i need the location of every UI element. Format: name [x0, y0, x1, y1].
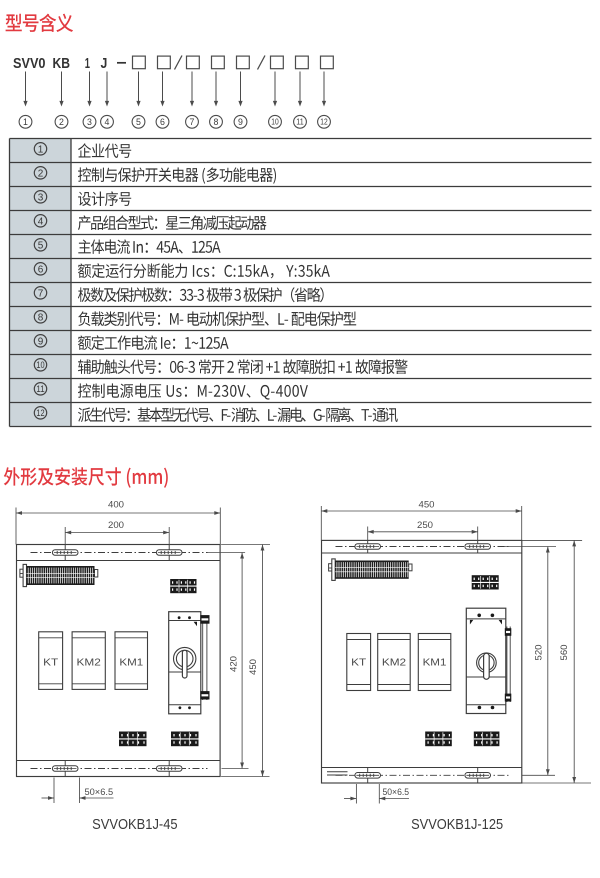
- svg-text:KM1: KM1: [423, 657, 447, 668]
- svg-text:12: 12: [320, 118, 328, 127]
- svg-text:3: 3: [87, 117, 92, 127]
- svg-text:SVV0: SVV0: [13, 56, 46, 72]
- svg-text:KM2: KM2: [77, 657, 102, 668]
- svg-text:450: 450: [247, 659, 258, 675]
- svg-text:7: 7: [190, 117, 195, 127]
- svg-text:4: 4: [38, 216, 44, 227]
- svg-text:2: 2: [59, 117, 64, 127]
- svg-text:250: 250: [417, 519, 433, 530]
- svg-text:J: J: [101, 56, 108, 72]
- svg-text:KT: KT: [43, 657, 59, 668]
- svg-text:5: 5: [136, 117, 141, 127]
- svg-text:2: 2: [38, 168, 44, 179]
- svg-text:SVVOKB1J-45: SVVOKB1J-45: [92, 817, 178, 833]
- svg-text:7: 7: [38, 288, 44, 299]
- svg-text:KM2: KM2: [382, 657, 407, 668]
- svg-text:1: 1: [38, 144, 44, 155]
- svg-text:50×6.5: 50×6.5: [383, 786, 410, 797]
- svg-text:200: 200: [108, 519, 124, 530]
- svg-text:420: 420: [228, 656, 239, 672]
- svg-text:9: 9: [38, 336, 44, 347]
- svg-text:11: 11: [296, 118, 304, 127]
- svg-text:SVVOKB1J-125: SVVOKB1J-125: [411, 817, 503, 833]
- svg-text:1: 1: [85, 56, 90, 72]
- svg-text:KB: KB: [53, 56, 71, 72]
- svg-text:3: 3: [38, 192, 44, 203]
- svg-text:560: 560: [558, 645, 569, 661]
- svg-text:5: 5: [38, 240, 44, 251]
- svg-text:50×6.5: 50×6.5: [85, 786, 114, 797]
- svg-text:1: 1: [23, 117, 28, 127]
- svg-text:KT: KT: [351, 657, 367, 668]
- svg-text:520: 520: [532, 645, 543, 661]
- svg-text:10: 10: [36, 360, 44, 370]
- svg-text:8: 8: [214, 117, 219, 127]
- svg-text:12: 12: [36, 408, 44, 418]
- svg-text:6: 6: [160, 117, 165, 127]
- svg-text:400: 400: [108, 499, 124, 510]
- svg-text:KM1: KM1: [119, 657, 143, 668]
- svg-text:10: 10: [271, 118, 279, 127]
- svg-text:9: 9: [238, 117, 243, 127]
- svg-text:8: 8: [38, 312, 44, 323]
- svg-text:11: 11: [36, 384, 44, 394]
- svg-text:4: 4: [105, 117, 110, 127]
- svg-text:450: 450: [419, 499, 435, 510]
- svg-text:6: 6: [38, 264, 44, 275]
